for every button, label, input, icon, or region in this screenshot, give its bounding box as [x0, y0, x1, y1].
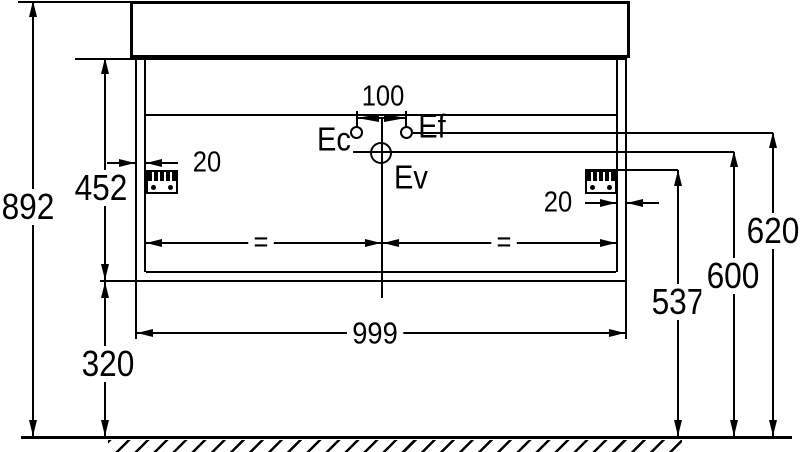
bracket-screw-hole — [168, 185, 173, 190]
arrowhead — [383, 239, 399, 247]
drain-label: Ev — [394, 161, 428, 194]
dim-ground-clearance-text: 320 — [76, 346, 139, 382]
arrowhead — [384, 114, 406, 122]
dim-cabinet-height-text: 452 — [69, 170, 132, 206]
cabinet-shelf-line — [146, 114, 616, 116]
arrowhead — [769, 132, 777, 148]
dim-tap-hole-spacing-text: 100 — [362, 83, 405, 112]
bracket-screw-hole — [151, 185, 156, 190]
cold-water-label: Ef — [418, 110, 445, 143]
arrowhead — [146, 159, 162, 167]
drain-circle — [370, 142, 392, 164]
arrowhead — [101, 58, 109, 74]
bracket-rail-detail — [148, 172, 176, 181]
equal-mark-right: = — [491, 229, 516, 258]
bracket-rail-detail — [587, 172, 615, 181]
arrowhead — [137, 329, 153, 337]
equal-mark-left: = — [248, 229, 273, 258]
technical-drawing-canvas: 892 452 320 999 537 600 620 100 20 20 = … — [0, 0, 800, 452]
mounting-bracket-left — [146, 170, 178, 194]
cabinet-inner-wall-right — [616, 60, 618, 272]
arrowhead — [357, 114, 379, 122]
arrowhead — [769, 420, 777, 436]
countertop — [130, 1, 630, 58]
arrowhead — [627, 199, 643, 207]
hot-water-label: Ec — [317, 123, 351, 156]
cold-water-circle — [400, 126, 413, 139]
dimension-line-620 — [772, 133, 774, 436]
arrowhead — [600, 239, 616, 247]
cold-water-leader-line — [413, 132, 773, 134]
dim-supply-height-text: 620 — [741, 213, 800, 249]
arrowhead — [674, 420, 682, 436]
ground-line — [21, 436, 792, 439]
arrowhead — [600, 199, 616, 207]
bracket-screw-hole — [590, 185, 595, 190]
dim-wall-thickness-left-text: 20 — [193, 149, 221, 178]
mounting-bracket-right — [585, 170, 617, 194]
arrowhead — [146, 239, 162, 247]
ground-hatching — [108, 440, 682, 452]
drain-leader-line — [353, 151, 734, 153]
arrowhead — [674, 170, 682, 186]
hot-water-circle — [350, 126, 363, 139]
dim-bracket-height-text: 537 — [646, 284, 709, 320]
extension-line-right-wall — [625, 282, 627, 339]
dim-width-text: 999 — [347, 318, 403, 349]
dim-wall-thickness-right-text: 20 — [544, 189, 572, 218]
bracket-screw-hole — [607, 185, 612, 190]
arrowhead — [101, 282, 109, 298]
dim-overall-height-text: 892 — [0, 189, 60, 225]
arrowhead — [365, 239, 381, 247]
arrowhead — [609, 329, 625, 337]
arrowhead — [119, 159, 135, 167]
arrowhead — [29, 420, 37, 436]
arrowhead — [101, 264, 109, 280]
arrowhead — [730, 420, 738, 436]
arrowhead — [29, 1, 37, 17]
arrowhead — [101, 420, 109, 436]
dim-drain-height-text: 600 — [701, 258, 764, 294]
arrowhead — [730, 151, 738, 167]
